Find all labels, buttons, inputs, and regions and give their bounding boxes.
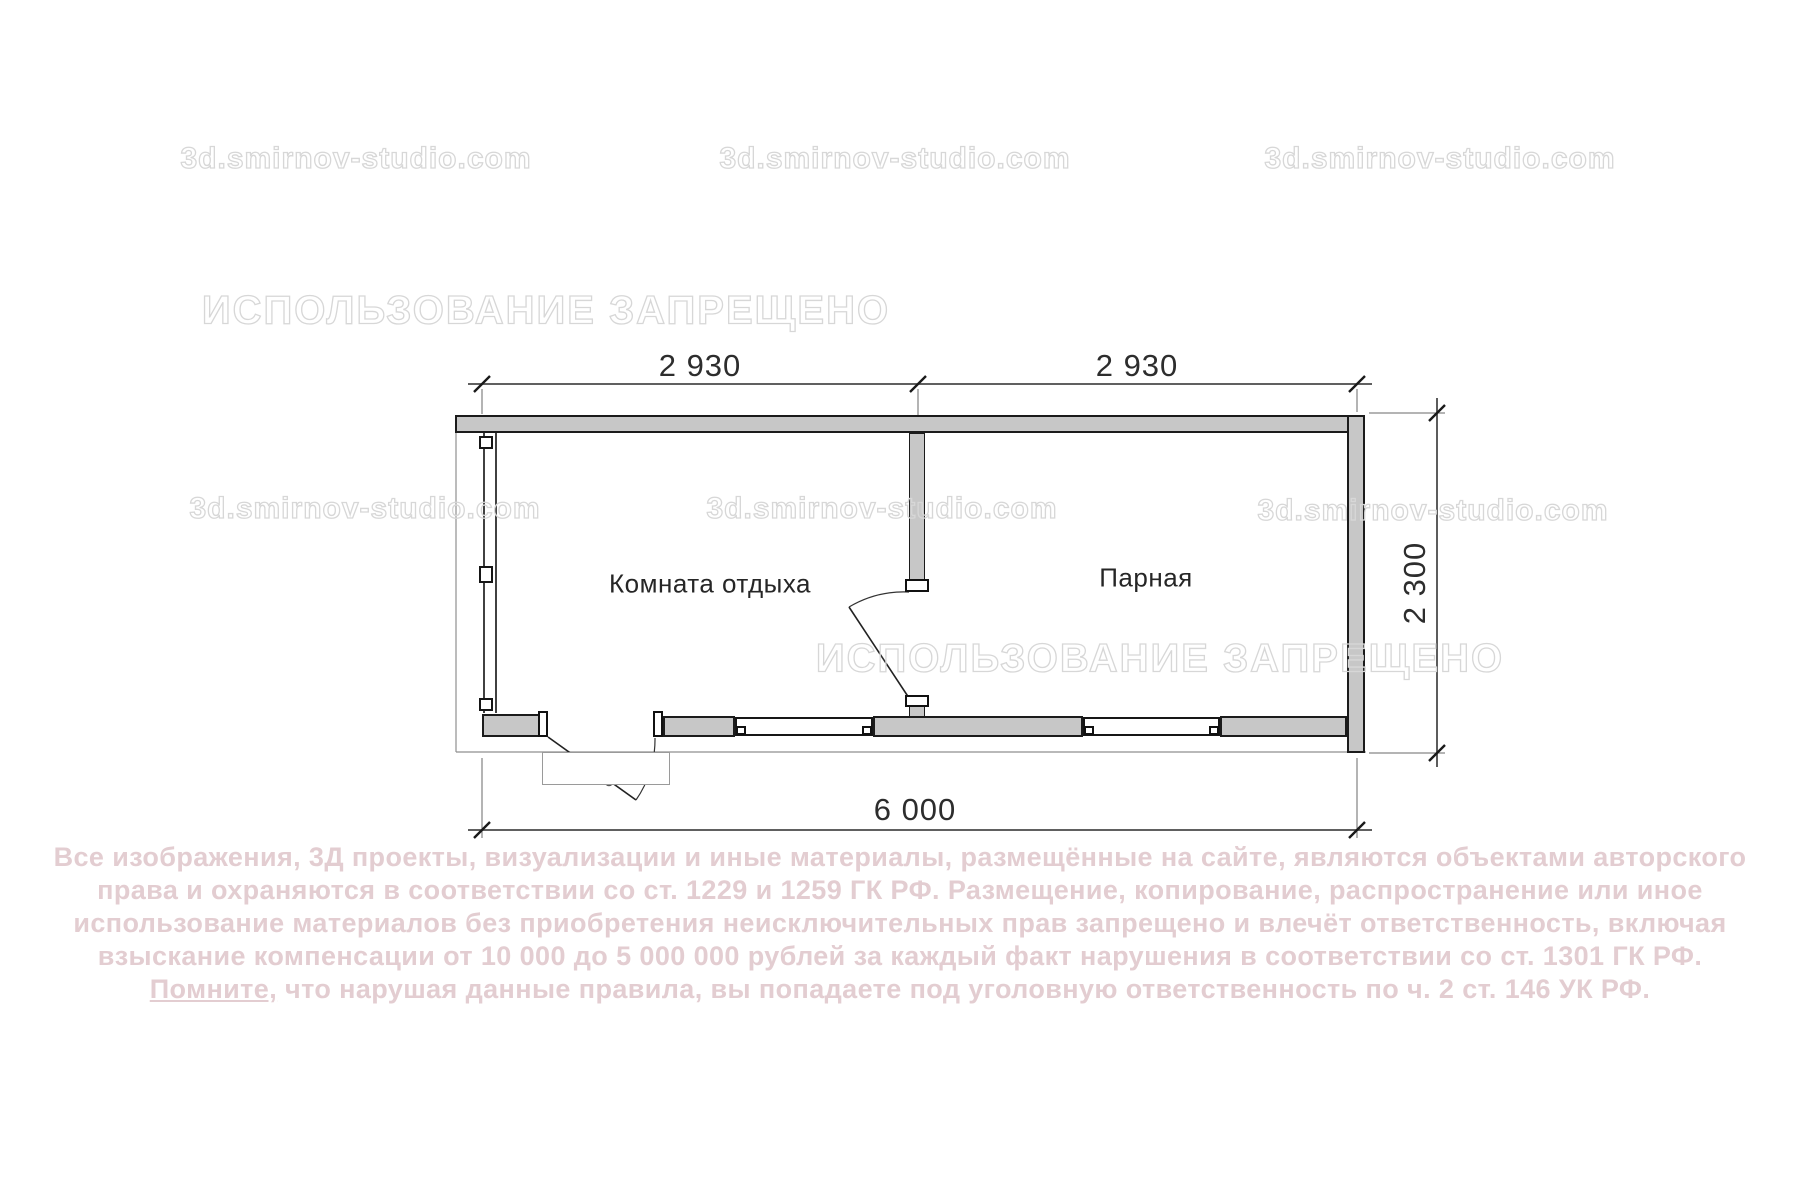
- bottom-wall-pier-2: [873, 716, 1083, 737]
- partition-wall-upper: [909, 433, 925, 580]
- right-wall: [1347, 415, 1365, 753]
- window-2-sill-left: [1084, 726, 1094, 735]
- entrance-porch: [542, 752, 670, 785]
- glazed-wall-mullion-middle: [479, 566, 493, 583]
- window-1-sill-right: [862, 726, 872, 735]
- dimension-label-right: 2 300: [1397, 542, 1433, 625]
- plan-linework: [0, 0, 1800, 1200]
- copyright-line: использование материалов без приобретени…: [50, 907, 1750, 940]
- dimension-label-bottom: 6 000: [874, 792, 957, 828]
- room-label-steam-room: Парная: [1099, 563, 1193, 594]
- entrance-door-jamb-left: [538, 711, 548, 737]
- window-2: [1083, 717, 1220, 736]
- room-label-rest-room: Комната отдыха: [609, 569, 811, 600]
- copyright-line: Все изображения, 3Д проекты, визуализаци…: [50, 841, 1750, 874]
- entrance-door-jamb-right: [653, 711, 663, 737]
- copyright-line: взыскание компенсации от 10 000 до 5 000…: [50, 940, 1750, 973]
- copyright-notice: Все изображения, 3Д проекты, визуализаци…: [50, 841, 1750, 1006]
- glazed-wall-mullion-bottom: [479, 698, 493, 711]
- glazed-wall-mullion-top: [479, 436, 493, 449]
- floor-plan-page: 2 930 2 930 6 000 2 300 Комната отдыха П…: [0, 0, 1800, 1200]
- dimension-label-top-right: 2 930: [1096, 348, 1179, 384]
- copyright-line: права и охраняются в соответствии со ст.…: [50, 874, 1750, 907]
- partition-door-jamb-lower: [905, 695, 929, 707]
- bottom-wall-pier-1: [663, 716, 735, 737]
- bottom-wall-pier-3: [1220, 716, 1347, 737]
- copyright-underlined-word: Помните,: [150, 974, 277, 1004]
- window-1: [735, 717, 873, 736]
- partition-door-jamb-upper: [905, 579, 929, 592]
- window-1-sill-left: [736, 726, 746, 735]
- window-2-sill-right: [1209, 726, 1219, 735]
- copyright-line: Помните, что нарушая данные правила, вы …: [50, 973, 1750, 1006]
- copyright-line-rest: что нарушая данные правила, вы попадаете…: [277, 974, 1650, 1004]
- partition-door-swing: [849, 592, 909, 698]
- dimension-label-top-left: 2 930: [659, 348, 742, 384]
- top-wall: [455, 415, 1365, 433]
